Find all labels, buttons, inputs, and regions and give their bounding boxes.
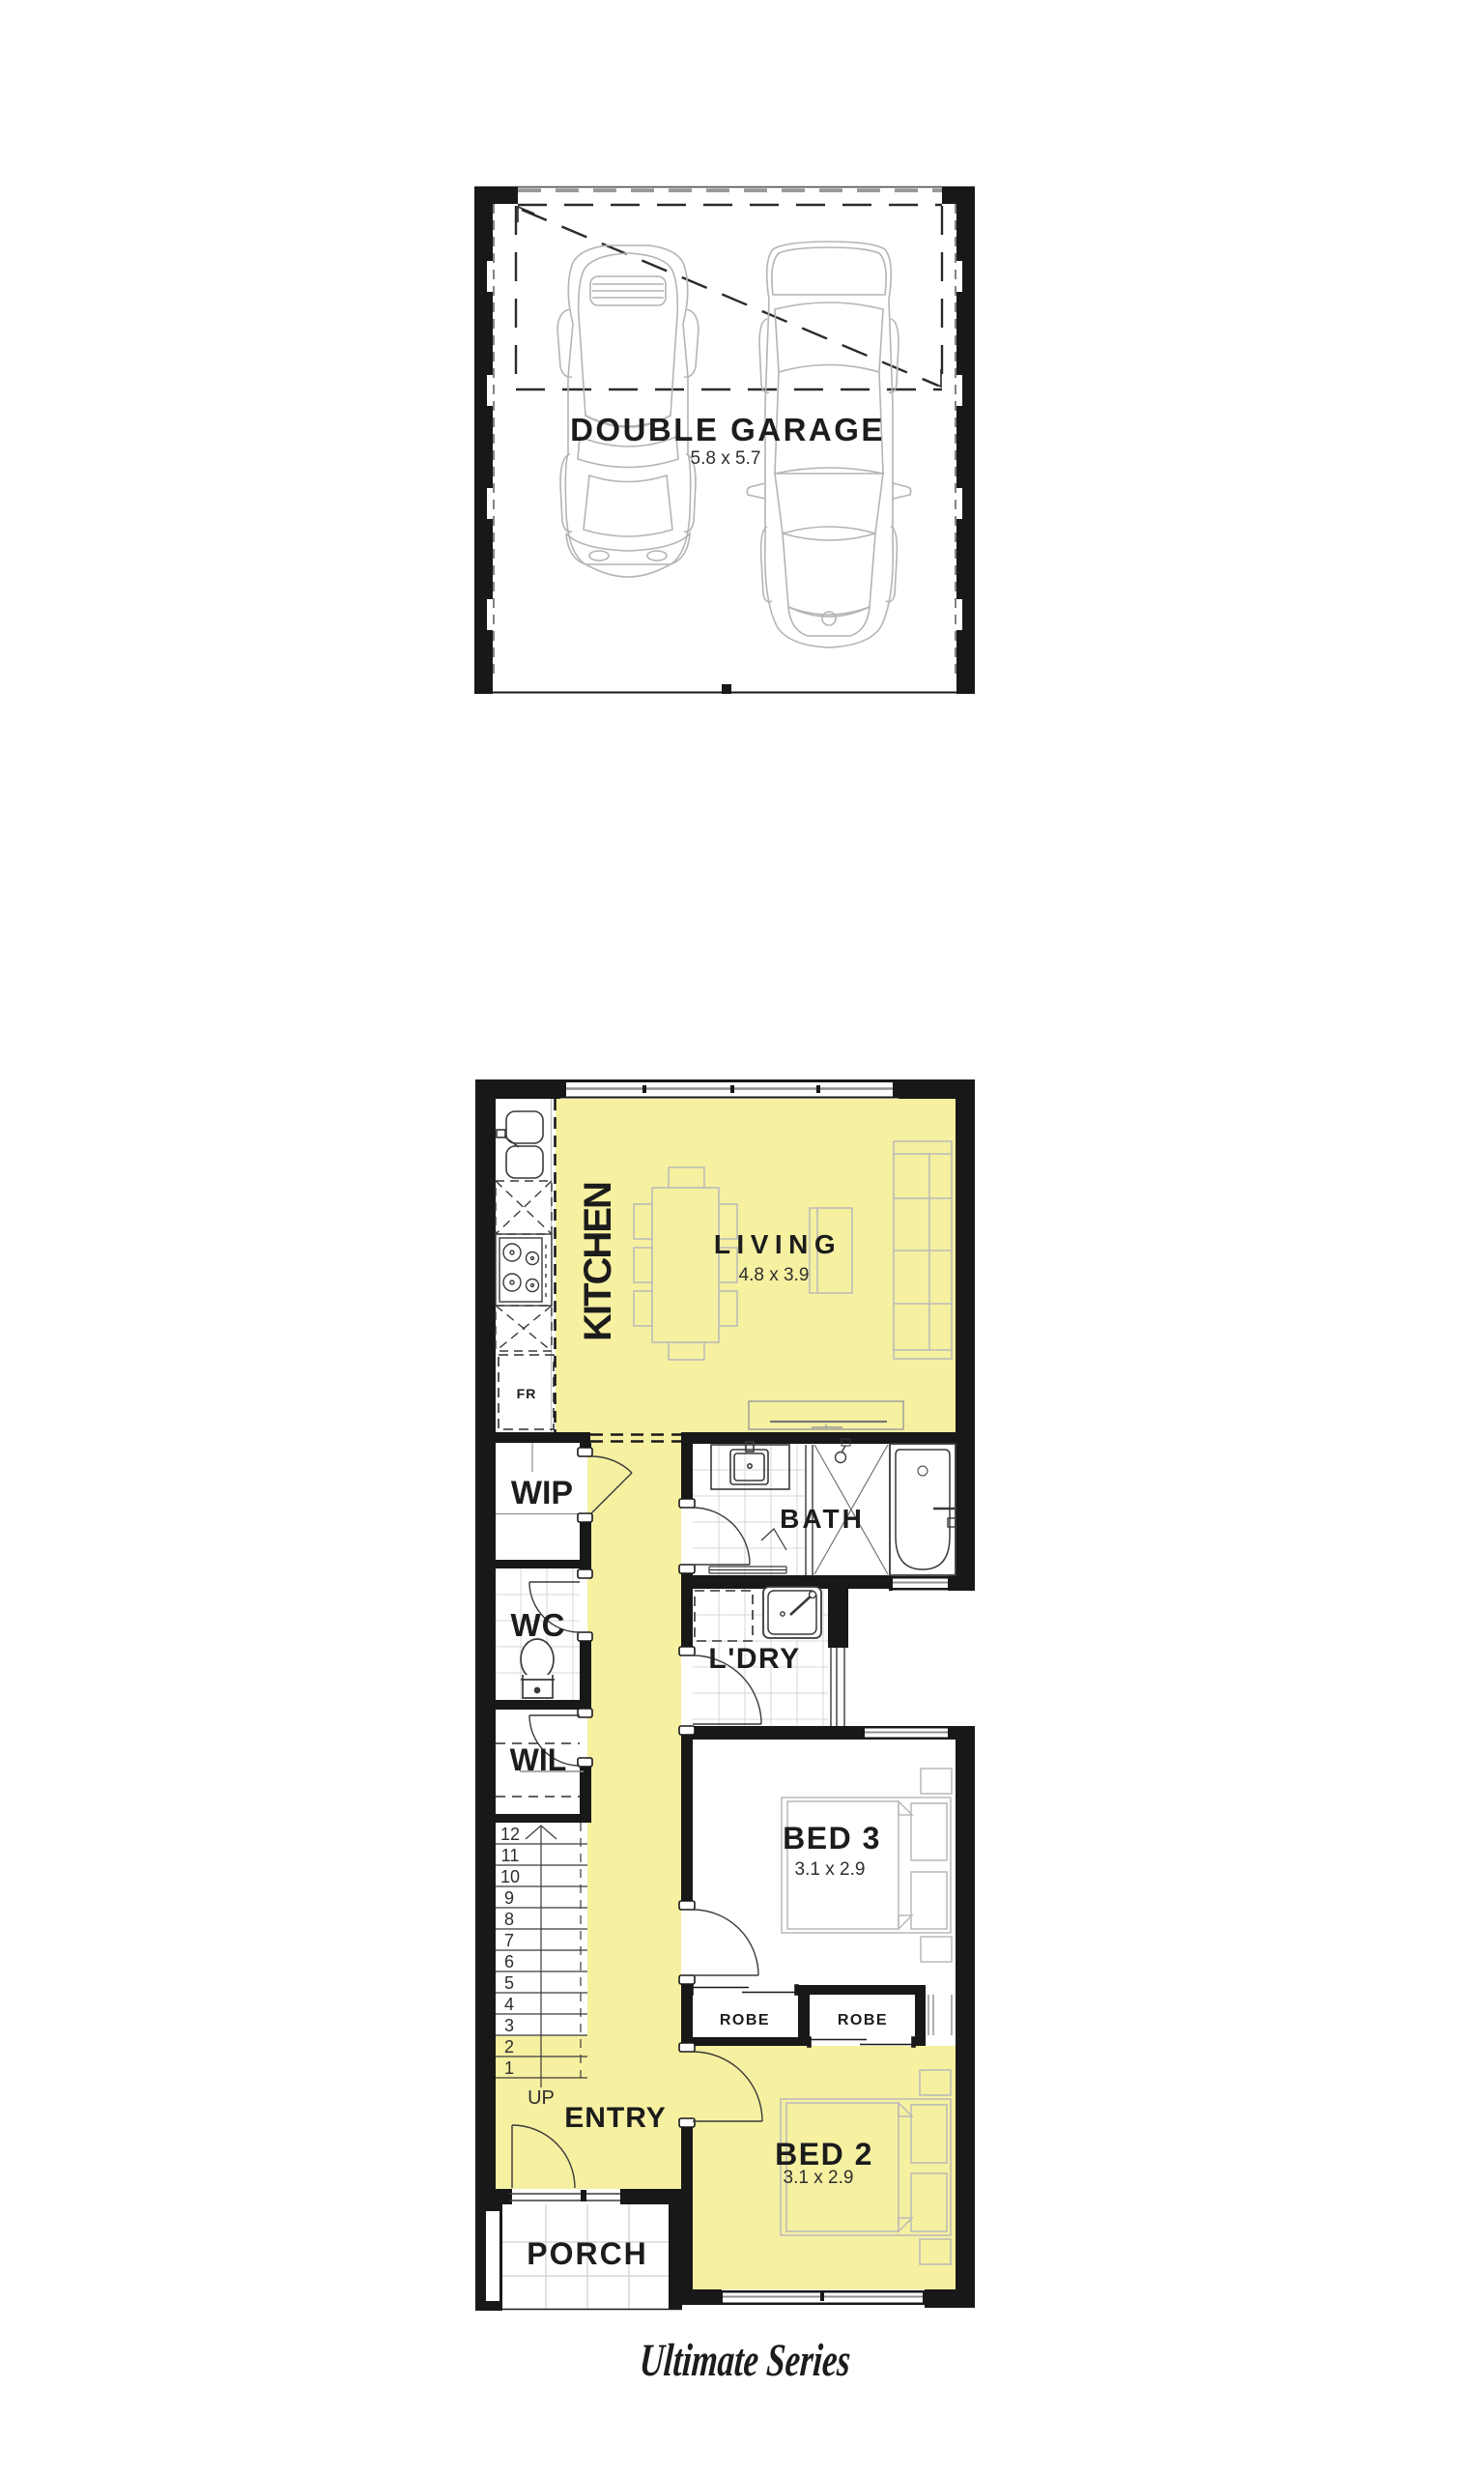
svg-text:12: 12 [500, 1825, 520, 1844]
svg-text:3: 3 [504, 2016, 514, 2035]
svg-text:4: 4 [504, 1995, 514, 2014]
svg-text:BED 2: BED 2 [775, 2137, 873, 2172]
svg-text:ENTRY: ENTRY [564, 2102, 667, 2134]
svg-text:BED 3: BED 3 [783, 1821, 881, 1855]
svg-text:11: 11 [501, 1846, 520, 1865]
svg-text:KITCHEN: KITCHEN [577, 1183, 619, 1341]
svg-text:1: 1 [504, 2058, 514, 2078]
svg-text:6: 6 [504, 1952, 514, 1971]
svg-text:LIVING: LIVING [714, 1229, 842, 1259]
svg-text:FR: FR [517, 1386, 537, 1401]
svg-text:10: 10 [500, 1867, 520, 1886]
svg-text:3.1 x 2.9: 3.1 x 2.9 [795, 1859, 866, 1880]
svg-text:WIL: WIL [510, 1742, 567, 1777]
svg-text:9: 9 [504, 1888, 514, 1908]
svg-text:L'DRY: L'DRY [708, 1643, 800, 1675]
svg-text:BATH: BATH [780, 1504, 865, 1534]
svg-text:8: 8 [504, 1910, 514, 1929]
svg-text:5: 5 [504, 1973, 514, 1993]
svg-text:5.8 x 5.7: 5.8 x 5.7 [691, 448, 761, 469]
svg-text:ROBE: ROBE [838, 2012, 888, 2028]
svg-text:Ultimate Series: Ultimate Series [638, 2336, 852, 2387]
svg-text:WC: WC [511, 1607, 566, 1643]
svg-text:2: 2 [504, 2037, 514, 2057]
svg-text:UP: UP [528, 2087, 555, 2109]
svg-text:PORCH: PORCH [527, 2236, 648, 2271]
svg-text:ROBE: ROBE [720, 2012, 770, 2028]
svg-text:DOUBLE GARAGE: DOUBLE GARAGE [570, 412, 885, 447]
svg-text:4.8 x 3.9: 4.8 x 3.9 [739, 1265, 810, 1285]
svg-text:3.1 x 2.9: 3.1 x 2.9 [784, 2168, 854, 2188]
svg-text:WIP: WIP [511, 1475, 573, 1511]
svg-text:7: 7 [504, 1931, 514, 1950]
